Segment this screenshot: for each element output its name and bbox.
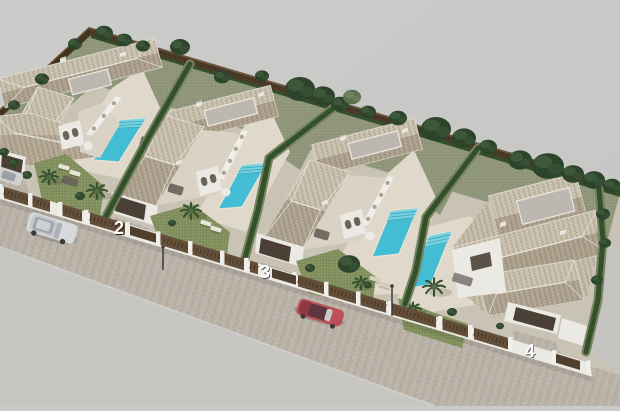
svg-text:4: 4 xyxy=(525,341,535,361)
svg-text:3: 3 xyxy=(260,262,270,282)
svg-text:2: 2 xyxy=(114,218,124,238)
